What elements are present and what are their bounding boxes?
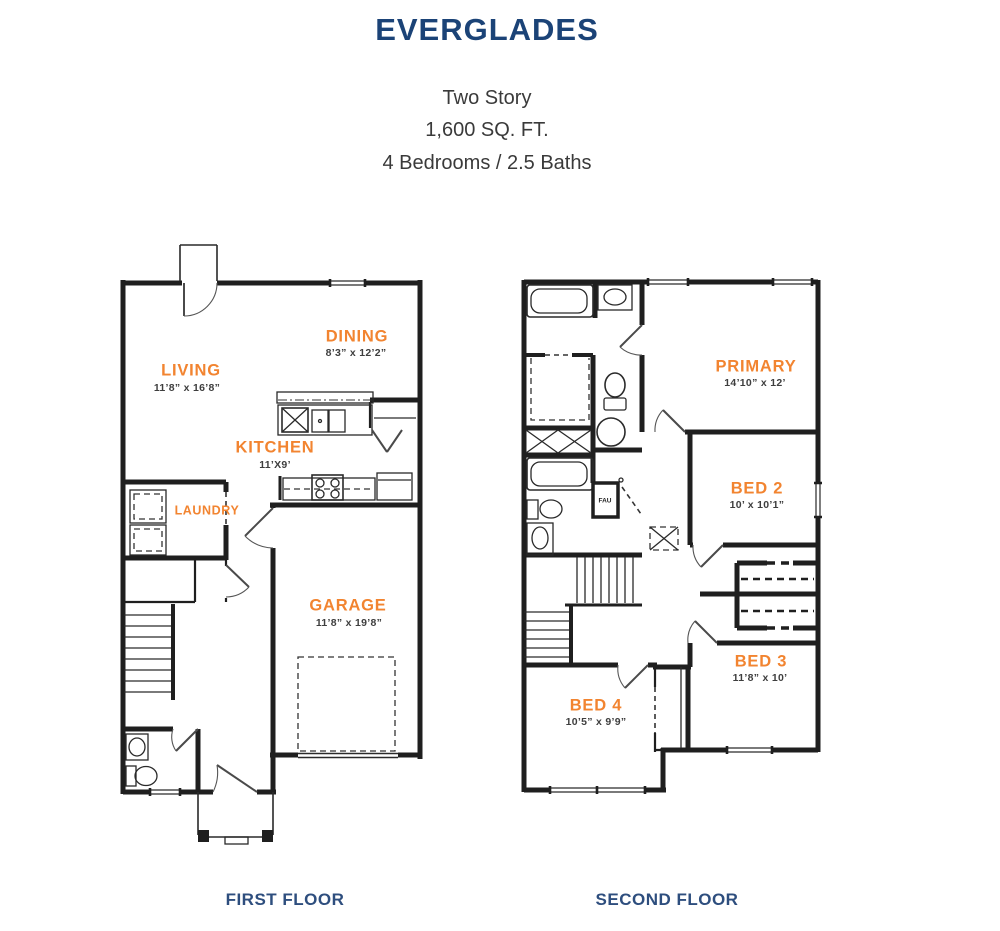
bed2-door (693, 545, 723, 567)
page-title: EVERGLADES (0, 12, 974, 48)
kitchen-sink-icon (312, 410, 328, 432)
first-floor-caption: FIRST FLOOR (135, 890, 435, 910)
linen-cabinet-icon (526, 430, 591, 453)
room-dims-garage: 11’8” x 19’8” (316, 617, 382, 629)
pedestal-sink-icon (597, 418, 625, 446)
washer-dryer-icon (130, 490, 166, 555)
garage-door (298, 754, 398, 758)
first-floor-stairs (124, 615, 171, 692)
bed3-door (688, 621, 717, 643)
fau-label: FAU (599, 498, 612, 505)
primary-tub-icon (527, 285, 593, 317)
room-dims-bed2: 10’ x 10’1” (730, 499, 785, 511)
room-dims-living: 11’8” x 16’8” (154, 382, 220, 394)
room-dims-primary: 14’10” x 12’ (724, 377, 785, 389)
half-bath-sink-icon (126, 734, 148, 760)
closet-door (226, 565, 249, 597)
kitchen-counter-stove (280, 473, 412, 500)
room-dims-bed3: 11’8” x 10’ (733, 672, 788, 684)
front-door (213, 765, 257, 792)
refrigerator-icon (377, 473, 412, 500)
room-label-primary: PRIMARY (715, 357, 796, 375)
room-label-living: LIVING (161, 361, 221, 379)
front-porch (198, 792, 273, 844)
second-floor-stairs (524, 557, 633, 657)
second-floor-plan-drawing: FAU PRIMARY 14’10” x 12’ BED 2 10’ x 10’… (505, 230, 835, 860)
first-floor-plan-drawing: LIVING 11’8” x 16’8” DINING 8’3” x 12’2”… (110, 230, 440, 860)
subtitle-bed-bath-count: 4 Bedrooms / 2.5 Baths (0, 152, 974, 175)
fau-closet: FAU (593, 483, 618, 517)
room-label-bed4: BED 4 (570, 696, 623, 714)
water-closet-toilet-icon (604, 373, 626, 410)
attic-access-icon (650, 527, 678, 550)
hall-bath-toilet-icon (527, 500, 562, 519)
room-label-kitchen: KITCHEN (236, 438, 315, 456)
kitchen-island (277, 392, 373, 435)
primary-bedroom-door (655, 410, 685, 432)
room-label-bed2: BED 2 (731, 479, 784, 497)
floor-plan-sheet: EVERGLADES Two Story 1,600 SQ. FT. 4 Bed… (0, 0, 1000, 931)
bed4-door (618, 665, 648, 688)
room-label-bed3: BED 3 (735, 652, 788, 670)
entry-door (180, 245, 217, 316)
primary-vanity-icon (598, 285, 632, 310)
hall-bath-tub-icon (527, 458, 593, 490)
subtitle-story-type: Two Story (0, 87, 974, 110)
hall-bath-sink-icon (527, 523, 553, 555)
room-dims-kitchen: 11’X9’ (259, 459, 291, 471)
half-bath-door (172, 729, 198, 751)
primary-bath-door (620, 325, 642, 355)
subtitle-square-feet: 1,600 SQ. FT. (0, 119, 974, 142)
room-label-garage: GARAGE (309, 596, 386, 614)
garage-parking-outline (298, 657, 395, 751)
second-floor-caption: SECOND FLOOR (517, 890, 817, 910)
walk-in-closet-shelving (531, 358, 589, 420)
room-label-laundry: LAUNDRY (175, 503, 240, 517)
hall-bath-door (619, 478, 641, 514)
garage-entry-door (245, 508, 273, 548)
room-label-dining: DINING (326, 327, 389, 345)
room-dims-dining: 8’3” x 12’2” (326, 347, 387, 359)
pantry (372, 418, 416, 452)
half-bath-toilet-icon (126, 766, 157, 786)
room-dims-bed4: 10’5” x 9’9” (566, 716, 627, 728)
